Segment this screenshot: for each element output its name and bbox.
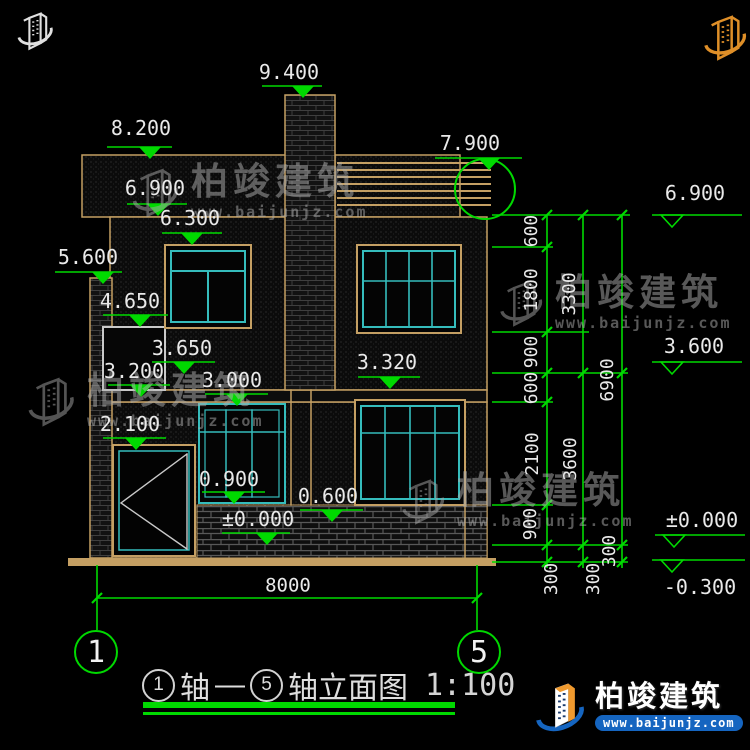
level-label-6900-right: 6.900 xyxy=(665,183,725,203)
dim-chain-mid-300: 300 xyxy=(585,563,603,596)
brand-name: 柏竣建筑 xyxy=(595,683,743,712)
brand-url: www.baijunjz.com xyxy=(595,715,743,731)
dim-chain-inner-600a: 600 xyxy=(523,215,541,248)
level-label-minus0300: -0.300 xyxy=(664,577,736,597)
entry-door xyxy=(113,445,195,556)
dim-chain-inner-300: 300 xyxy=(543,563,561,596)
elevation-drawing-canvas: 柏竣建筑 www.baijunjz.com 柏竣建筑 www.baijunjz.… xyxy=(0,0,750,750)
watermark-logo-icon xyxy=(398,474,448,528)
title-axis-b: 5 xyxy=(250,669,283,702)
window-2f-right xyxy=(357,245,461,333)
title-scale: 1:100 xyxy=(425,668,515,703)
watermark-brand: 柏竣建筑 xyxy=(457,472,634,509)
level-label-0900: 0.900 xyxy=(199,469,259,489)
title-word-b: 轴立面图 xyxy=(288,663,408,707)
window-2f-left xyxy=(165,245,251,328)
title-underline-thin xyxy=(143,712,455,715)
chimney xyxy=(285,95,335,390)
level-label-2100: 2.100 xyxy=(100,414,160,434)
watermark: 柏竣建筑 www.baijunjz.com xyxy=(398,472,634,530)
brand-logo-icon xyxy=(531,679,587,735)
level-label-8200: 8.200 xyxy=(111,118,171,138)
watermark-brand: 柏竣建筑 xyxy=(555,274,732,311)
axis-number-1: 1 xyxy=(87,638,105,668)
title-word-a: 轴 xyxy=(180,663,210,707)
drawing-title: 1 轴 — 5 轴立面图 1:100 xyxy=(142,663,515,707)
level-label-7900: 7.900 xyxy=(440,133,500,153)
dim-chain-inner-900b: 900 xyxy=(522,508,540,541)
watermark-brand: 柏竣建筑 xyxy=(191,163,368,200)
level-label-6900-left: 6.900 xyxy=(125,178,185,198)
dim-chain-inner-900a: 900 xyxy=(523,336,541,369)
level-label-9400: 9.400 xyxy=(259,62,319,82)
level-label-3000: 3.000 xyxy=(202,370,262,390)
dim-chain-mid-3600: 3600 xyxy=(562,437,580,480)
watermark-url: www.baijunjz.com xyxy=(555,314,732,332)
corner-logo-icon-top-right xyxy=(700,6,750,68)
title-axis-a: 1 xyxy=(142,669,175,702)
dim-chain-inner-1800: 1800 xyxy=(523,268,541,311)
level-label-3200: 3.200 xyxy=(104,361,164,381)
level-label-3600-right: 3.600 xyxy=(664,336,724,356)
watermark-url: www.baijunjz.com xyxy=(457,512,634,530)
level-label-3650: 3.650 xyxy=(152,338,212,358)
title-dash: — xyxy=(215,668,245,702)
level-label-4650: 4.650 xyxy=(100,291,160,311)
dim-chain-mid-3300: 3300 xyxy=(561,272,579,315)
dim-total-width: 8000 xyxy=(265,577,311,596)
brand-logo: 柏竣建筑 www.baijunjz.com xyxy=(531,679,743,735)
level-label-3320: 3.320 xyxy=(357,352,417,372)
level-label-5600: 5.600 xyxy=(58,247,118,267)
ground-slab xyxy=(68,558,496,566)
watermark-logo-icon xyxy=(24,372,78,430)
dim-chain-inner-600b: 600 xyxy=(523,372,541,405)
detail-circle xyxy=(455,159,515,219)
level-label-0000-mid: ±0.000 xyxy=(222,509,294,529)
level-label-0600: 0.600 xyxy=(298,486,358,506)
corner-logo-icon-top-left xyxy=(14,8,56,53)
dim-chain-inner-2100: 2100 xyxy=(524,432,542,475)
dim-chain-outer-6900: 6900 xyxy=(599,358,617,401)
level-label-0000-right: ±0.000 xyxy=(666,510,738,530)
level-label-6300: 6.300 xyxy=(160,208,220,228)
title-underline-thick xyxy=(143,702,455,708)
dim-chain-outer-300: 300 xyxy=(601,535,619,568)
